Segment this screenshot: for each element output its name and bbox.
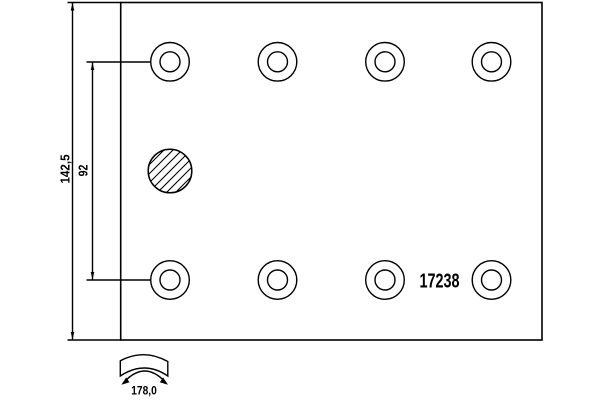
svg-text:92: 92 — [77, 165, 91, 177]
svg-text:142,5: 142,5 — [58, 154, 72, 183]
svg-text:17238: 17238 — [420, 269, 460, 292]
svg-text:178,0: 178,0 — [131, 385, 157, 398]
